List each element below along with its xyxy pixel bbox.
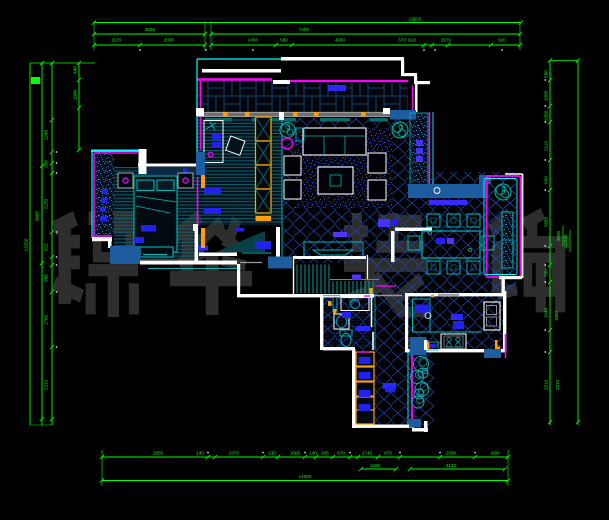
svg-text:3665: 3665 xyxy=(145,27,156,32)
svg-text:1245: 1245 xyxy=(44,129,49,140)
svg-text:2670: 2670 xyxy=(441,38,452,43)
svg-text:140: 140 xyxy=(196,451,204,456)
svg-text:2310: 2310 xyxy=(44,379,49,390)
svg-text:1880: 1880 xyxy=(554,310,559,321)
svg-text:2460: 2460 xyxy=(248,38,259,43)
svg-text:580: 580 xyxy=(544,70,549,78)
svg-text:2580: 2580 xyxy=(446,451,457,456)
svg-text:2250: 2250 xyxy=(44,198,49,209)
svg-text:1005: 1005 xyxy=(290,451,301,456)
svg-text:370: 370 xyxy=(398,38,406,43)
svg-text:13250: 13250 xyxy=(24,238,29,251)
svg-text:1540: 1540 xyxy=(544,307,549,318)
svg-text:870: 870 xyxy=(384,451,392,456)
svg-text:880: 880 xyxy=(44,274,49,282)
svg-text:3085: 3085 xyxy=(35,210,40,221)
svg-text:3580: 3580 xyxy=(556,230,561,241)
svg-text:1780: 1780 xyxy=(44,314,49,325)
svg-text:2310: 2310 xyxy=(544,379,549,390)
svg-text:670: 670 xyxy=(337,451,345,456)
svg-text:2110: 2110 xyxy=(544,141,549,151)
svg-text:1570: 1570 xyxy=(111,38,122,43)
svg-text:230: 230 xyxy=(268,451,276,456)
svg-text:13555: 13555 xyxy=(409,17,422,22)
svg-text:2880: 2880 xyxy=(544,216,549,227)
svg-text:1000: 1000 xyxy=(73,89,78,100)
svg-text:3120: 3120 xyxy=(446,463,457,468)
svg-text:4060: 4060 xyxy=(335,38,346,43)
svg-text:905: 905 xyxy=(321,451,329,456)
svg-text:1(8)0: 1(8)0 xyxy=(544,110,549,121)
svg-text:580: 580 xyxy=(280,38,288,43)
svg-text:1740: 1740 xyxy=(362,451,373,456)
svg-text:2955: 2955 xyxy=(153,451,164,456)
svg-text:200: 200 xyxy=(44,160,49,168)
svg-text:140: 140 xyxy=(309,451,317,456)
svg-text:600: 600 xyxy=(491,451,499,456)
svg-text:12230: 12230 xyxy=(563,234,568,247)
svg-text:920: 920 xyxy=(498,38,506,43)
svg-text:600: 600 xyxy=(544,176,549,184)
svg-text:815: 815 xyxy=(44,243,49,251)
svg-text:7450: 7450 xyxy=(299,27,310,32)
svg-text:2370: 2370 xyxy=(229,451,240,456)
svg-text:700: 700 xyxy=(544,269,549,277)
svg-text:14050: 14050 xyxy=(299,474,312,479)
svg-text:440: 440 xyxy=(73,66,78,74)
svg-text:2310: 2310 xyxy=(555,379,560,390)
svg-text:610: 610 xyxy=(408,38,416,43)
svg-text:1260: 1260 xyxy=(370,463,381,468)
svg-text:1000: 1000 xyxy=(544,90,549,101)
svg-text:2095: 2095 xyxy=(164,38,175,43)
